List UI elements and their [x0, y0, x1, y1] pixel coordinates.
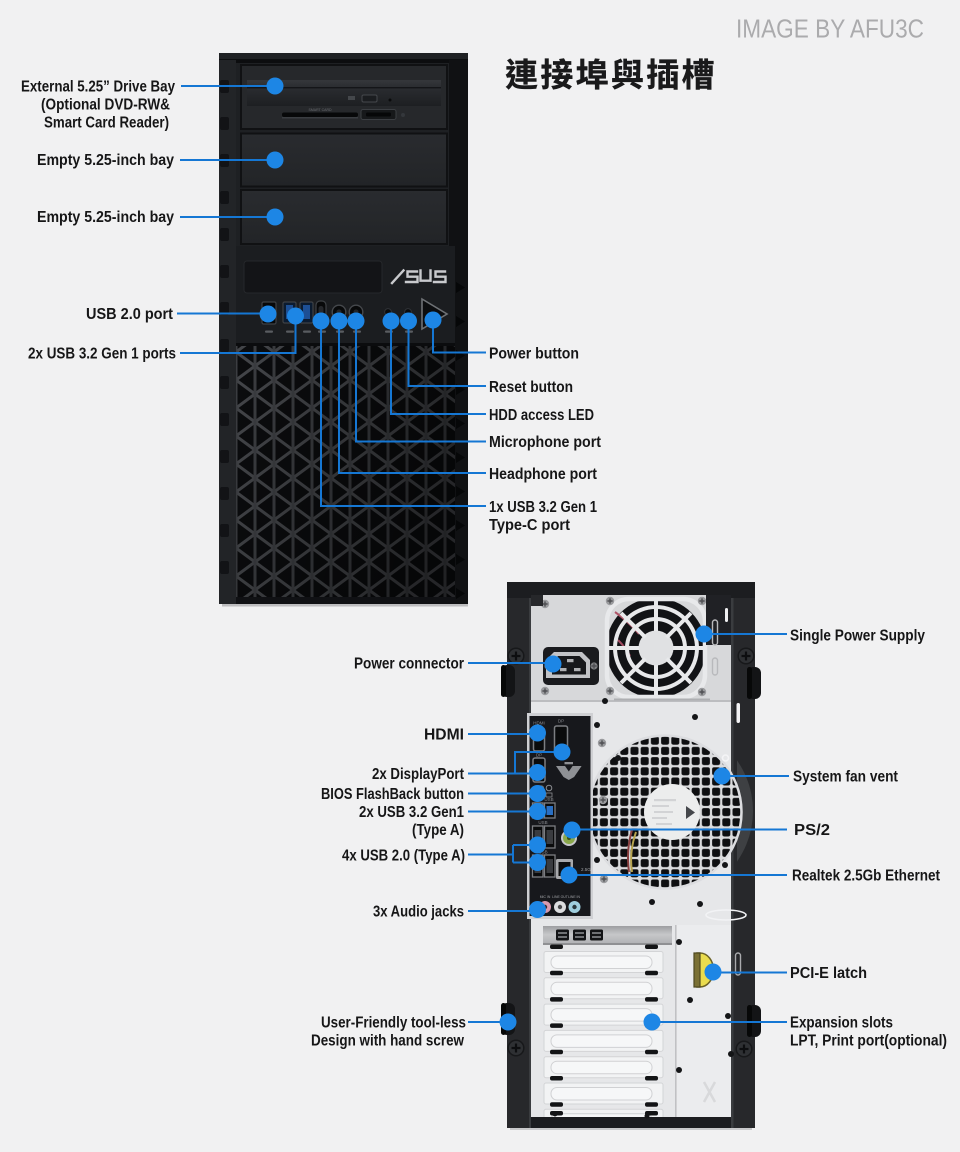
svg-text:Type-C port: Type-C port	[489, 517, 570, 534]
svg-text:PCI-E latch: PCI-E latch	[790, 965, 867, 982]
svg-text:Expansion slots: Expansion slots	[790, 1015, 893, 1032]
svg-text:Power button: Power button	[489, 346, 579, 363]
svg-text:System fan vent: System fan vent	[793, 769, 898, 786]
svg-text:External 5.25” Drive Bay: External 5.25” Drive Bay	[21, 78, 175, 95]
svg-text:LPT, Print port(optional): LPT, Print port(optional)	[790, 1033, 947, 1050]
svg-text:Empty 5.25-inch bay: Empty 5.25-inch bay	[37, 152, 174, 169]
svg-text:HDD access LED: HDD access LED	[489, 407, 594, 424]
svg-text:MIC IN: MIC IN	[540, 895, 551, 899]
svg-text:PS/2: PS/2	[794, 822, 830, 839]
svg-text:Design with hand screw: Design with hand screw	[311, 1033, 465, 1050]
svg-text:USB: USB	[538, 820, 547, 825]
svg-text:Single Power Supply: Single Power Supply	[790, 628, 925, 645]
svg-text:Smart Card Reader): Smart Card Reader)	[44, 115, 169, 132]
svg-text:SMART CARD: SMART CARD	[308, 108, 331, 112]
svg-text:1x USB 3.2 Gen 1: 1x USB 3.2 Gen 1	[489, 499, 597, 516]
svg-text:Microphone port: Microphone port	[489, 434, 601, 451]
svg-text:Empty 5.25-inch bay: Empty 5.25-inch bay	[37, 209, 174, 226]
svg-text:2x USB 3.2 Gen 1 ports: 2x USB 3.2 Gen 1 ports	[28, 346, 176, 363]
svg-text:2x USB 3.2 Gen1: 2x USB 3.2 Gen1	[359, 804, 464, 821]
svg-text:2.5G: 2.5G	[581, 867, 591, 872]
svg-text:DP: DP	[558, 719, 564, 724]
svg-text:3x Audio jacks: 3x Audio jacks	[373, 904, 464, 921]
svg-text:HDMI: HDMI	[424, 727, 464, 744]
svg-text:4x USB 2.0 (Type A): 4x USB 2.0 (Type A)	[342, 848, 465, 865]
svg-text:DP: DP	[536, 753, 542, 758]
svg-text:Power connector: Power connector	[354, 656, 464, 673]
svg-text:(Optional DVD-RW&: (Optional DVD-RW&	[41, 97, 170, 114]
svg-text:Reset button: Reset button	[489, 379, 573, 396]
svg-text:Headphone port: Headphone port	[489, 466, 597, 483]
svg-text:USB 2.0 port: USB 2.0 port	[86, 306, 173, 323]
svg-text:2x DisplayPort: 2x DisplayPort	[372, 766, 464, 783]
svg-text:USB: USB	[544, 797, 553, 802]
svg-text:LINE IN: LINE IN	[568, 895, 580, 899]
svg-text:User-Friendly tool-less: User-Friendly tool-less	[321, 1015, 466, 1032]
svg-text:BIOS FlashBack button: BIOS FlashBack button	[321, 786, 464, 803]
svg-text:Realtek 2.5Gb Ethernet: Realtek 2.5Gb Ethernet	[792, 868, 940, 885]
svg-text:(Type A): (Type A)	[412, 822, 464, 839]
svg-text:LINE OUT: LINE OUT	[552, 895, 568, 899]
svg-text:IMAGE BY AFU3C: IMAGE BY AFU3C	[736, 16, 924, 44]
